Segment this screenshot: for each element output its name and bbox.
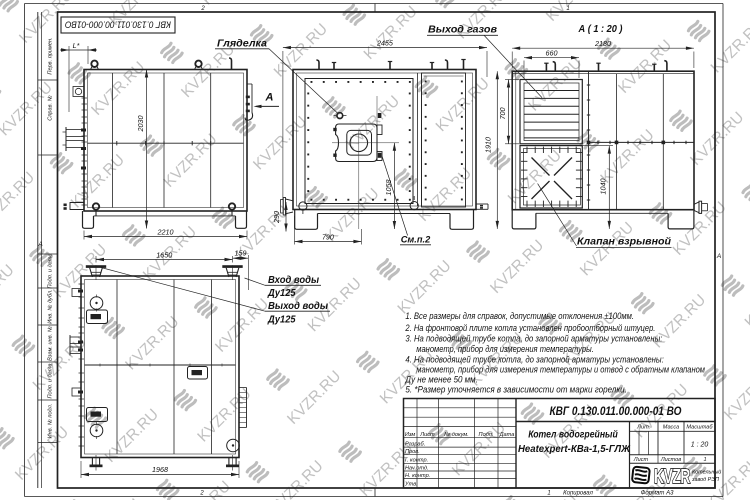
svg-text:Нач.отд.: Нач.отд. (405, 465, 429, 471)
svg-text:Перв. примен.: Перв. примен. (48, 37, 54, 74)
svg-text:2. На фронтовой плите котла ус: 2. На фронтовой плите котла установлен п… (405, 323, 656, 333)
svg-text:Копировал: Копировал (563, 491, 593, 497)
svg-text:Листов: Листов (660, 457, 681, 463)
svg-text:1: 1 (566, 6, 569, 12)
svg-text:КВГ 0.130.011.00.000-01 ВО: КВГ 0.130.011.00.000-01 ВО (550, 406, 682, 418)
svg-text:Утв.: Утв. (404, 482, 418, 488)
svg-text:А: А (265, 92, 274, 104)
svg-text:КВГ 0.130.011.00.000-01ВО: КВГ 0.130.011.00.000-01ВО (64, 19, 171, 30)
svg-text:Формат А3: Формат А3 (641, 491, 674, 497)
svg-text:Пров.: Пров. (405, 449, 420, 455)
svg-text:Подп.: Подп. (479, 432, 494, 438)
svg-text:2030: 2030 (136, 116, 145, 133)
svg-text:1910: 1910 (483, 137, 492, 153)
svg-text:Котел водогрейный: Котел водогрейный (528, 430, 618, 441)
svg-text:1. Все размеры для справок, до: 1. Все размеры для справок, допустимые о… (405, 311, 634, 321)
svg-text:завод РЭП: завод РЭП (691, 477, 719, 483)
svg-text:Лист: Лист (633, 457, 649, 463)
svg-text:Дата: Дата (499, 432, 515, 438)
svg-text:290: 290 (272, 211, 281, 224)
svg-text:700: 700 (498, 108, 507, 120)
svg-text:А: А (716, 253, 721, 260)
svg-text:1650: 1650 (156, 251, 172, 260)
svg-text:Ду не менее 50 мм.: Ду не менее 50 мм. (404, 375, 477, 385)
svg-text:1058: 1058 (384, 180, 393, 196)
svg-text:Клапан взрывной: Клапан взрывной (577, 237, 671, 248)
svg-text:159: 159 (235, 249, 247, 258)
svg-text:2180: 2180 (594, 39, 611, 48)
svg-text:Инв. № подл.: Инв. № подл. (48, 404, 54, 439)
svg-text:Масштаб: Масштаб (686, 424, 713, 430)
svg-text:Т. контр.: Т. контр. (404, 458, 428, 464)
svg-text:Выход газов: Выход газов (428, 25, 497, 36)
svg-text:Лит.: Лит. (636, 424, 650, 430)
svg-text:Разраб.: Разраб. (405, 441, 425, 447)
svg-text:2455: 2455 (376, 39, 394, 48)
svg-text:А: А (37, 241, 42, 248)
svg-text:1968: 1968 (152, 465, 168, 474)
svg-text:Выход воды: Выход воды (268, 301, 329, 312)
svg-text:Ду125: Ду125 (267, 288, 296, 299)
svg-text:манометр, прибор для измерения: манометр, прибор для измерения температу… (416, 344, 594, 354)
svg-text:См.п.2: См.п.2 (401, 235, 431, 246)
svg-text:790: 790 (322, 232, 334, 241)
svg-text:Heatexpert-КВа-1,5-ГЛЖ: Heatexpert-КВа-1,5-ГЛЖ (518, 444, 631, 455)
svg-text:А ( 1 : 20 ): А ( 1 : 20 ) (578, 24, 624, 35)
svg-text:Инв. № дубл.: Инв. № дубл. (48, 289, 54, 323)
svg-text:Масса: Масса (663, 424, 680, 430)
svg-text:№ докум.: № докум. (444, 432, 469, 438)
svg-text:4. На подводящей трубе котла,: 4. На подводящей трубе котла, до запорно… (405, 355, 664, 365)
svg-text:1: 1 (547, 491, 550, 497)
svg-text:1040: 1040 (599, 179, 608, 195)
svg-text:Котельный: Котельный (692, 469, 721, 476)
svg-text:2210: 2210 (157, 227, 174, 236)
svg-text:L*: L* (73, 41, 80, 50)
svg-text:2: 2 (199, 491, 204, 497)
svg-text:Изм: Изм (405, 432, 416, 438)
svg-text:Подп. и дата: Подп. и дата (48, 253, 54, 288)
svg-text:1 : 20: 1 : 20 (691, 442, 709, 449)
svg-text:KVZR: KVZR (654, 466, 691, 488)
svg-text:Взам. инв. №: Взам. инв. № (48, 326, 54, 361)
svg-text:Н. контр.: Н. контр. (405, 473, 430, 479)
svg-text:5. *Размер уточняется в зависи: 5. *Размер уточняется в зависимости от м… (405, 385, 627, 395)
svg-text:3. На подводящей трубе котла,: 3. На подводящей трубе котла, до запорно… (405, 334, 662, 344)
svg-text:Ду125: Ду125 (267, 315, 296, 326)
svg-text:манометр, прибор для измерения: манометр, прибор для измерения температу… (416, 365, 705, 375)
svg-text:1: 1 (703, 457, 706, 463)
svg-text:Подп. и дата: Подп. и дата (48, 363, 54, 398)
svg-text:660: 660 (546, 49, 558, 58)
svg-text:Лист: Лист (419, 432, 435, 438)
svg-text:2: 2 (200, 6, 205, 12)
svg-text:Вход воды: Вход воды (268, 275, 320, 286)
svg-text:Справ. №: Справ. № (48, 95, 54, 120)
svg-text:Гляделка: Гляделка (217, 39, 268, 50)
